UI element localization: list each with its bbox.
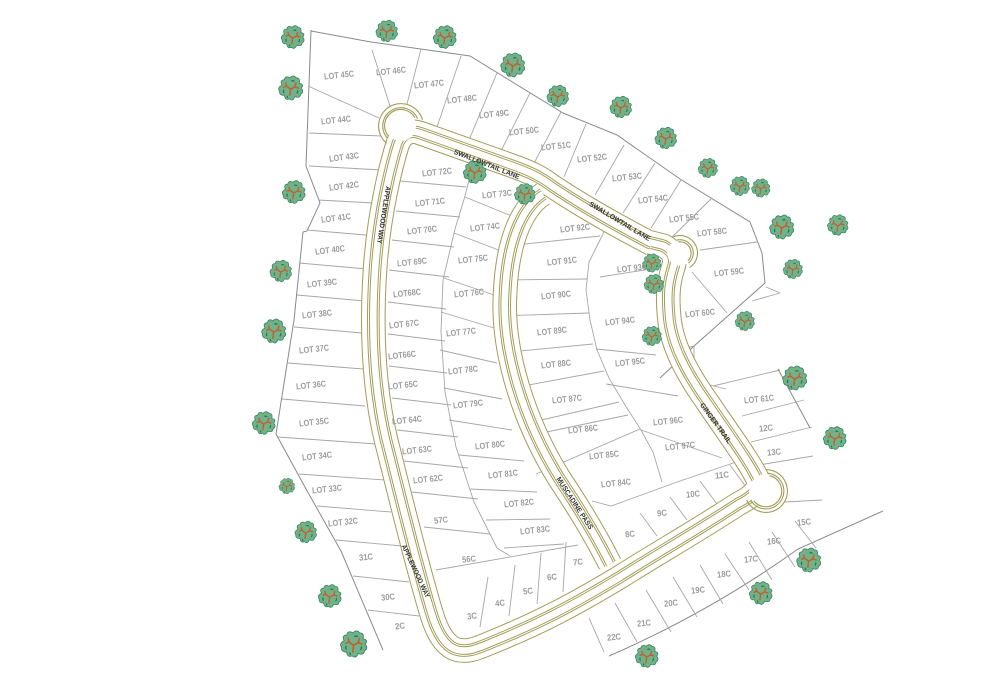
svg-text:6C: 6C <box>547 571 559 582</box>
svg-text:11C: 11C <box>715 469 731 480</box>
svg-text:57C: 57C <box>434 514 450 525</box>
svg-text:18C: 18C <box>717 568 733 579</box>
svg-text:17C: 17C <box>744 553 760 564</box>
svg-text:13C: 13C <box>767 446 783 457</box>
svg-text:8C: 8C <box>625 528 637 539</box>
svg-text:12C: 12C <box>759 422 775 433</box>
svg-text:5C: 5C <box>523 585 535 596</box>
svg-text:30C: 30C <box>381 591 397 602</box>
svg-text:31C: 31C <box>359 551 375 562</box>
svg-text:16C: 16C <box>767 535 783 546</box>
svg-text:4C: 4C <box>495 597 507 608</box>
svg-text:7C: 7C <box>573 556 585 567</box>
svg-text:10C: 10C <box>686 488 702 499</box>
svg-text:20C: 20C <box>664 597 680 608</box>
svg-text:15C: 15C <box>797 516 813 527</box>
svg-text:22C: 22C <box>607 631 623 642</box>
svg-text:21C: 21C <box>637 617 653 628</box>
svg-text:3C: 3C <box>467 610 479 621</box>
svg-text:19C: 19C <box>691 584 707 595</box>
svg-text:56C: 56C <box>462 553 478 564</box>
svg-text:9C: 9C <box>657 507 669 518</box>
svg-text:2C: 2C <box>395 620 407 631</box>
